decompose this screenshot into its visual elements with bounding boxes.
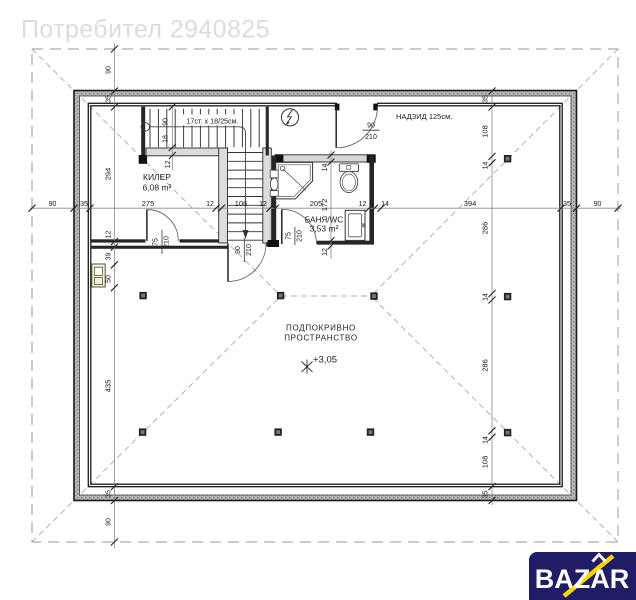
svg-text:90: 90: [105, 66, 112, 74]
svg-text:ПОДПОКРИВНО: ПОДПОКРИВНО: [286, 324, 356, 333]
svg-text:90: 90: [367, 123, 375, 130]
svg-text:12: 12: [359, 201, 367, 208]
svg-text:294: 294: [103, 168, 112, 181]
svg-text:210: 210: [365, 134, 377, 141]
svg-text:35: 35: [483, 95, 490, 103]
svg-text:275: 275: [142, 199, 155, 208]
svg-text:35: 35: [80, 201, 88, 208]
svg-text:90: 90: [235, 246, 242, 254]
svg-text:435: 435: [103, 380, 112, 393]
svg-text:12: 12: [206, 201, 214, 208]
svg-text:35: 35: [563, 201, 571, 208]
svg-text:ПРОСТРАНСТВО: ПРОСТРАНСТВО: [284, 334, 358, 343]
svg-text:75: 75: [153, 238, 160, 246]
svg-text:14: 14: [483, 162, 490, 170]
svg-text:17ст. х 18/25см.: 17ст. х 18/25см.: [186, 116, 238, 125]
svg-text:14: 14: [322, 164, 329, 172]
svg-text:286: 286: [481, 359, 490, 372]
svg-text:6,08 m²: 6,08 m²: [143, 183, 172, 193]
svg-text:35: 35: [483, 491, 490, 499]
svg-text:14: 14: [483, 436, 490, 444]
svg-text:90: 90: [163, 118, 170, 126]
svg-text:35: 35: [105, 490, 112, 498]
svg-text:39: 39: [105, 253, 112, 261]
svg-text:90: 90: [594, 201, 602, 208]
svg-text:18: 18: [163, 135, 170, 143]
svg-text:108: 108: [481, 125, 490, 138]
svg-text:12: 12: [322, 248, 329, 256]
svg-text:90: 90: [49, 201, 57, 208]
svg-text:90: 90: [105, 518, 112, 526]
svg-text:210: 210: [297, 230, 304, 242]
svg-text:НАДЗИД 125см.: НАДЗИД 125см.: [396, 112, 452, 121]
svg-text:75: 75: [285, 232, 292, 240]
svg-text:+3,05: +3,05: [313, 355, 337, 366]
svg-text:210: 210: [164, 236, 171, 248]
svg-text:210: 210: [246, 244, 253, 256]
svg-text:КИЛЕР: КИЛЕР: [143, 172, 171, 182]
svg-text:286: 286: [481, 222, 490, 235]
svg-text:35: 35: [105, 95, 112, 103]
svg-text:172: 172: [320, 199, 329, 212]
svg-text:Потребител 2940825: Потребител 2940825: [21, 16, 270, 44]
svg-text:14: 14: [381, 201, 389, 208]
svg-text:50: 50: [105, 275, 112, 283]
svg-text:3,53 m²: 3,53 m²: [310, 224, 339, 234]
svg-text:14: 14: [483, 293, 490, 301]
svg-text:394: 394: [464, 199, 477, 208]
svg-text:106: 106: [235, 199, 248, 208]
svg-text:BAZAR: BAZAR: [535, 564, 630, 594]
svg-text:12: 12: [259, 201, 267, 208]
svg-text:108: 108: [481, 456, 490, 469]
svg-text:12: 12: [165, 160, 172, 168]
svg-text:12: 12: [105, 231, 112, 239]
